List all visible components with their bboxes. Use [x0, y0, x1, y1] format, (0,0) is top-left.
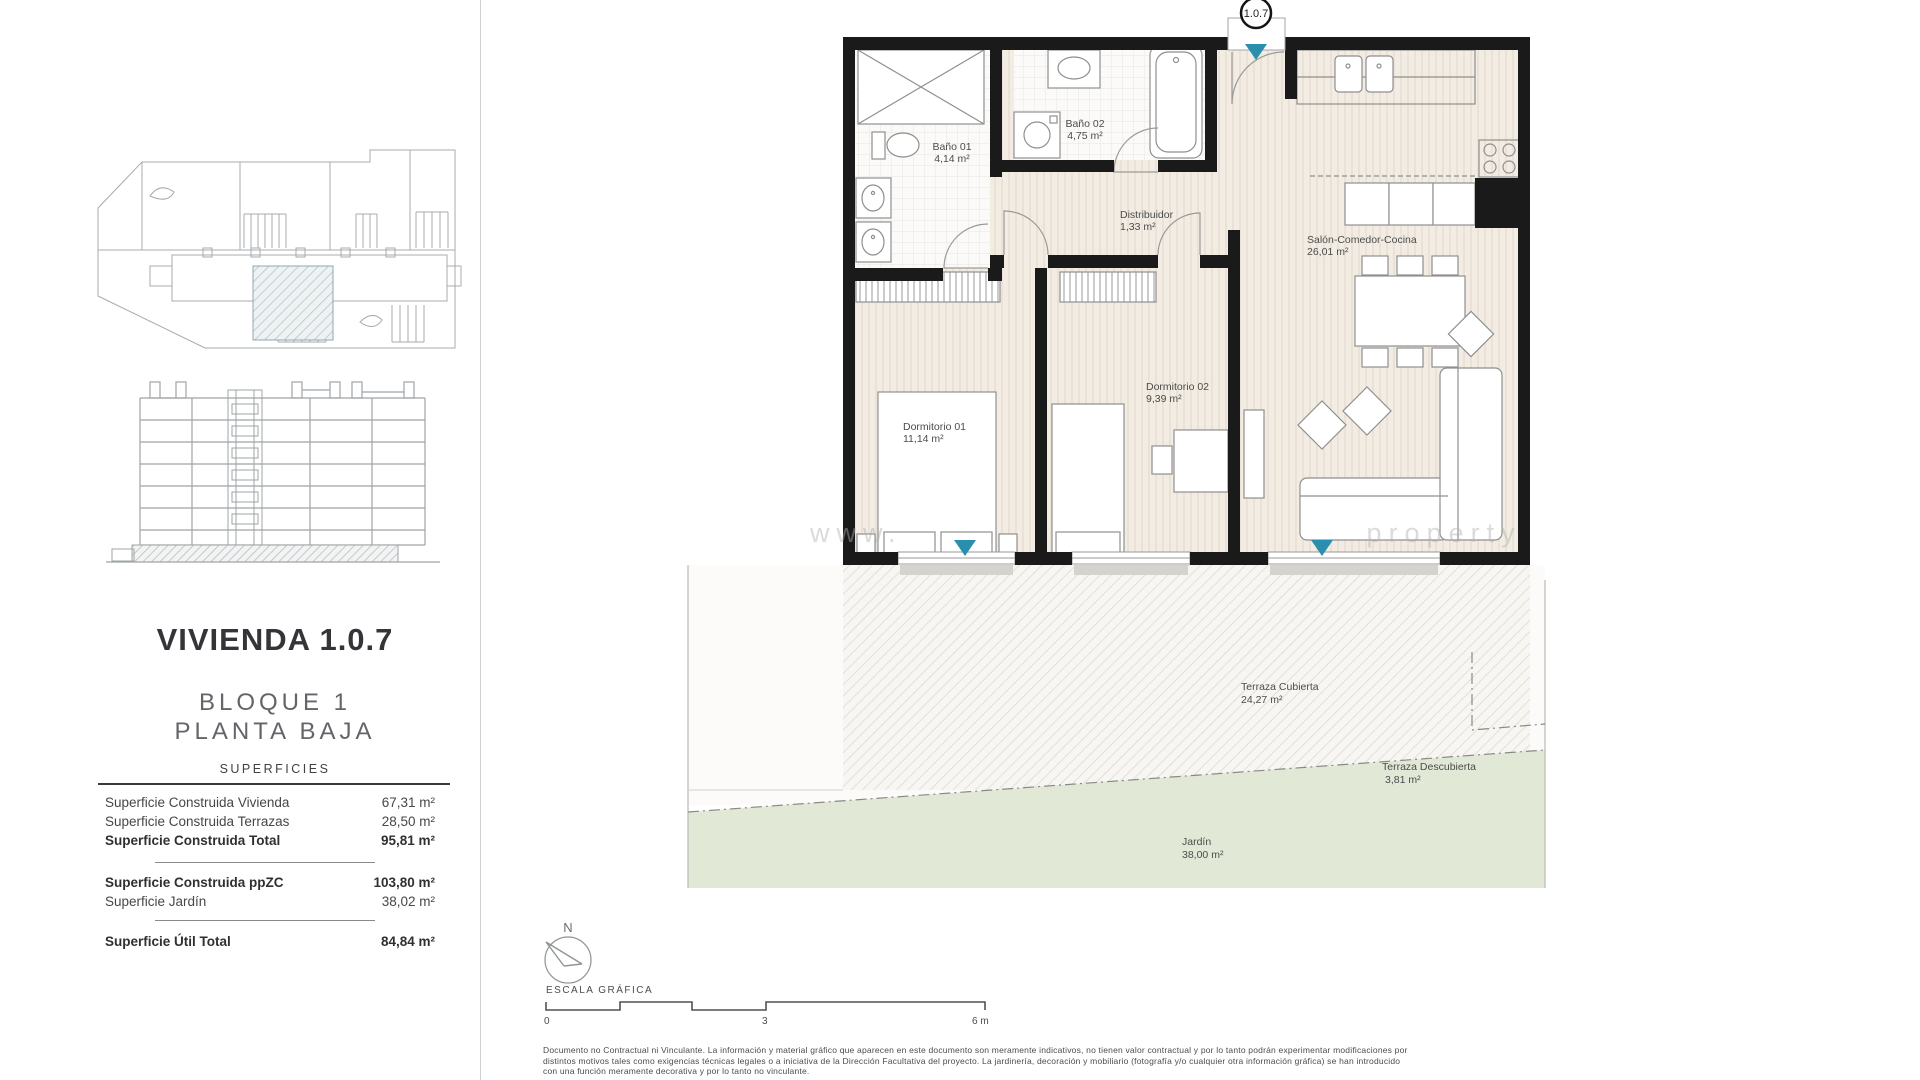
siteplan-tree — [360, 315, 382, 326]
row-label: Superficie Jardín — [105, 894, 206, 909]
room-name: Dormitorio 02 — [1146, 381, 1209, 393]
window-sill — [1074, 565, 1188, 575]
room-name: Baño 02 — [1065, 118, 1104, 130]
room-name: Distribuidor — [1120, 209, 1174, 221]
room-name: Terraza Descubierta — [1382, 761, 1476, 773]
panel-divider — [480, 0, 481, 1080]
floor-plan-drawing: 1.0.7 Baño 01 4,14 m² Baño 02 4,75 m² Di… — [660, 0, 1560, 900]
plan-sheet: VIVIENDA 1.0.7 BLOQUE 1 PLANTA BAJA SUPE… — [0, 0, 1920, 1080]
room-name: Salón-Comedor-Cocina — [1307, 234, 1417, 246]
row-label: Superficie Construida Total — [105, 833, 280, 848]
north-compass: N — [545, 920, 591, 983]
row-value: 28,50 m² — [340, 814, 435, 829]
row-label: Superficie Construida Terrazas — [105, 814, 289, 829]
siteplan-balconies-top — [244, 212, 448, 248]
toilet — [872, 132, 919, 159]
disclaimer-line: con una función meramente decorativa y p… — [543, 1066, 1553, 1077]
table-divider — [155, 862, 375, 863]
north-label: N — [563, 920, 572, 935]
siteplan-tree — [150, 188, 174, 199]
sheet-title: VIVIENDA 1.0.7 — [90, 622, 460, 658]
windows — [898, 552, 1440, 575]
room-name: Terraza Cubierta — [1241, 681, 1319, 693]
compass-circle-icon — [545, 937, 591, 983]
row-value: 67,31 m² — [340, 795, 435, 810]
outdoor-areas — [688, 565, 1545, 888]
siteplan-highlighted-unit — [253, 266, 333, 340]
room-area: 26,01 m² — [1307, 246, 1349, 258]
room-area: 9,39 m² — [1146, 393, 1182, 405]
bathtub — [1150, 46, 1202, 158]
table-row: Superficie Jardín 38,02 m² — [105, 894, 435, 912]
row-label: Superficie Construida Vivienda — [105, 795, 289, 810]
washing-machine — [1014, 112, 1060, 158]
unit-badge-label: 1.0.7 — [1244, 8, 1268, 20]
room-area: 4,75 m² — [1067, 130, 1103, 142]
room-name: Baño 01 — [932, 141, 971, 153]
table-row: Superficie Útil Total 84,84 m² — [105, 934, 435, 952]
row-value: 84,84 m² — [340, 934, 435, 949]
scale-tick: 0 — [544, 1016, 550, 1027]
scale-and-compass: N ESCALA GRÁFICA 0 3 6 m — [500, 900, 1060, 1040]
table-row: Superficie Construida ppZC 103,80 m² — [105, 875, 435, 893]
room-area: 1,33 m² — [1120, 221, 1156, 233]
room-name: Jardín — [1182, 836, 1211, 848]
table-row: Superficie Construida Total 95,81 m² — [105, 833, 435, 851]
row-label: Superficie Útil Total — [105, 934, 231, 949]
vanity-sink — [1048, 50, 1100, 88]
elevation-ground-band — [132, 545, 398, 562]
room-area: 38,00 m² — [1182, 849, 1224, 861]
site-plan-drawing — [80, 110, 470, 365]
block-label: BLOQUE 1 — [90, 688, 460, 717]
disclaimer-line: Documento no Contractual ni Vinculante. … — [543, 1045, 1553, 1056]
table-row: Superficie Construida Terrazas 28,50 m² — [105, 814, 435, 832]
surfaces-header: SUPERFICIES — [90, 762, 460, 776]
row-value: 95,81 m² — [340, 833, 435, 848]
scale-tick: 6 m — [972, 1016, 989, 1027]
window-sill — [900, 565, 1013, 575]
room-area: 24,27 m² — [1241, 694, 1283, 706]
floor-label: PLANTA BAJA — [90, 717, 460, 746]
room-area: 3,81 m² — [1385, 774, 1421, 786]
tv-bench — [1244, 410, 1264, 498]
room-area: 4,14 m² — [934, 153, 970, 165]
room-area: 11,14 m² — [903, 433, 944, 445]
compass-needle-icon — [546, 942, 582, 966]
surfaces-rule — [98, 783, 450, 785]
scale-tick: 3 — [762, 1016, 768, 1027]
sheet-subtitle: BLOQUE 1 PLANTA BAJA — [90, 688, 460, 746]
wardrobe-2 — [1060, 272, 1156, 302]
scale-caption: ESCALA GRÁFICA — [546, 983, 653, 996]
shower — [858, 50, 984, 124]
terraza-cubierta-hatch — [843, 565, 1530, 790]
disclaimer-line: distintos motivos tales como exigencias … — [543, 1056, 1553, 1067]
row-value: 103,80 m² — [340, 875, 435, 890]
room-name: Dormitorio 01 — [903, 421, 966, 433]
scale-bar — [546, 1002, 985, 1010]
watermark: www. property — [810, 518, 1370, 549]
elevation-drawing — [100, 365, 460, 575]
table-divider — [155, 920, 375, 921]
row-label: Superficie Construida ppZC — [105, 875, 284, 890]
disclaimer: Documento no Contractual ni Vinculante. … — [543, 1045, 1553, 1077]
dining-table — [1355, 256, 1465, 367]
window-sill — [1270, 565, 1438, 575]
table-row: Superficie Construida Vivienda 67,31 m² — [105, 795, 435, 813]
row-value: 38,02 m² — [340, 894, 435, 909]
